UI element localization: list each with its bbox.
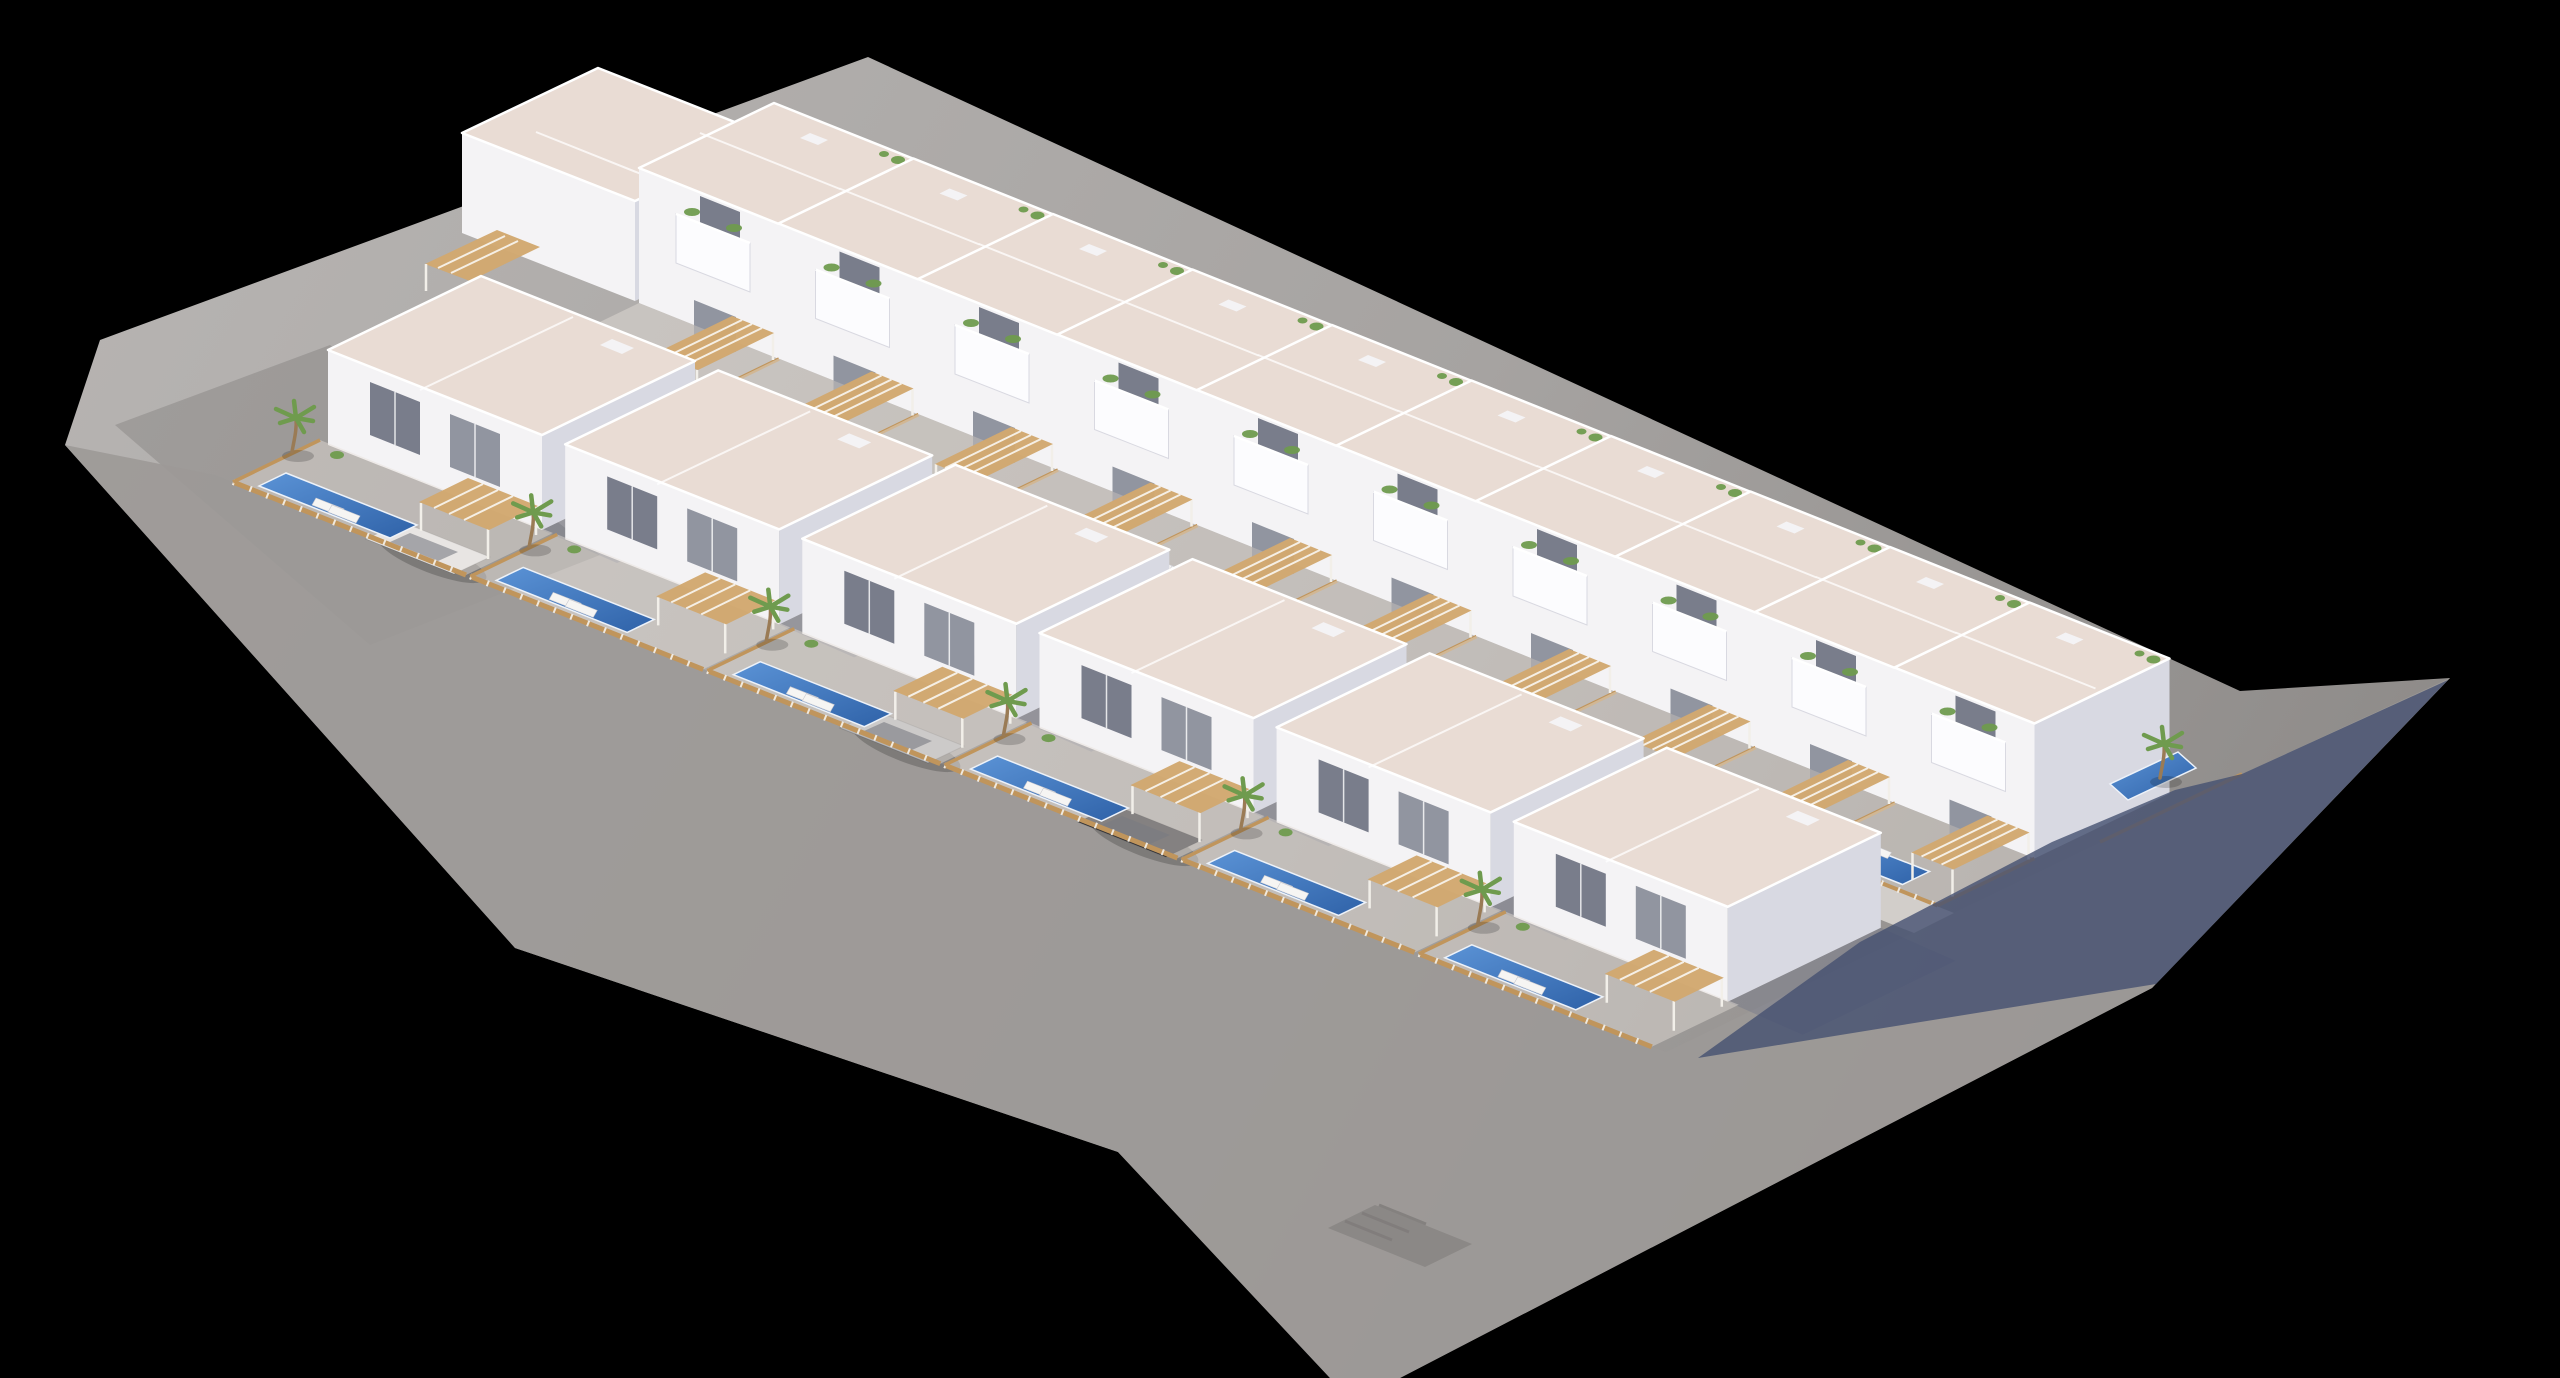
- architectural-render: Aerial 3D render of residential developm…: [0, 0, 2560, 1378]
- render-canvas: Aerial 3D render of residential developm…: [0, 0, 2560, 1378]
